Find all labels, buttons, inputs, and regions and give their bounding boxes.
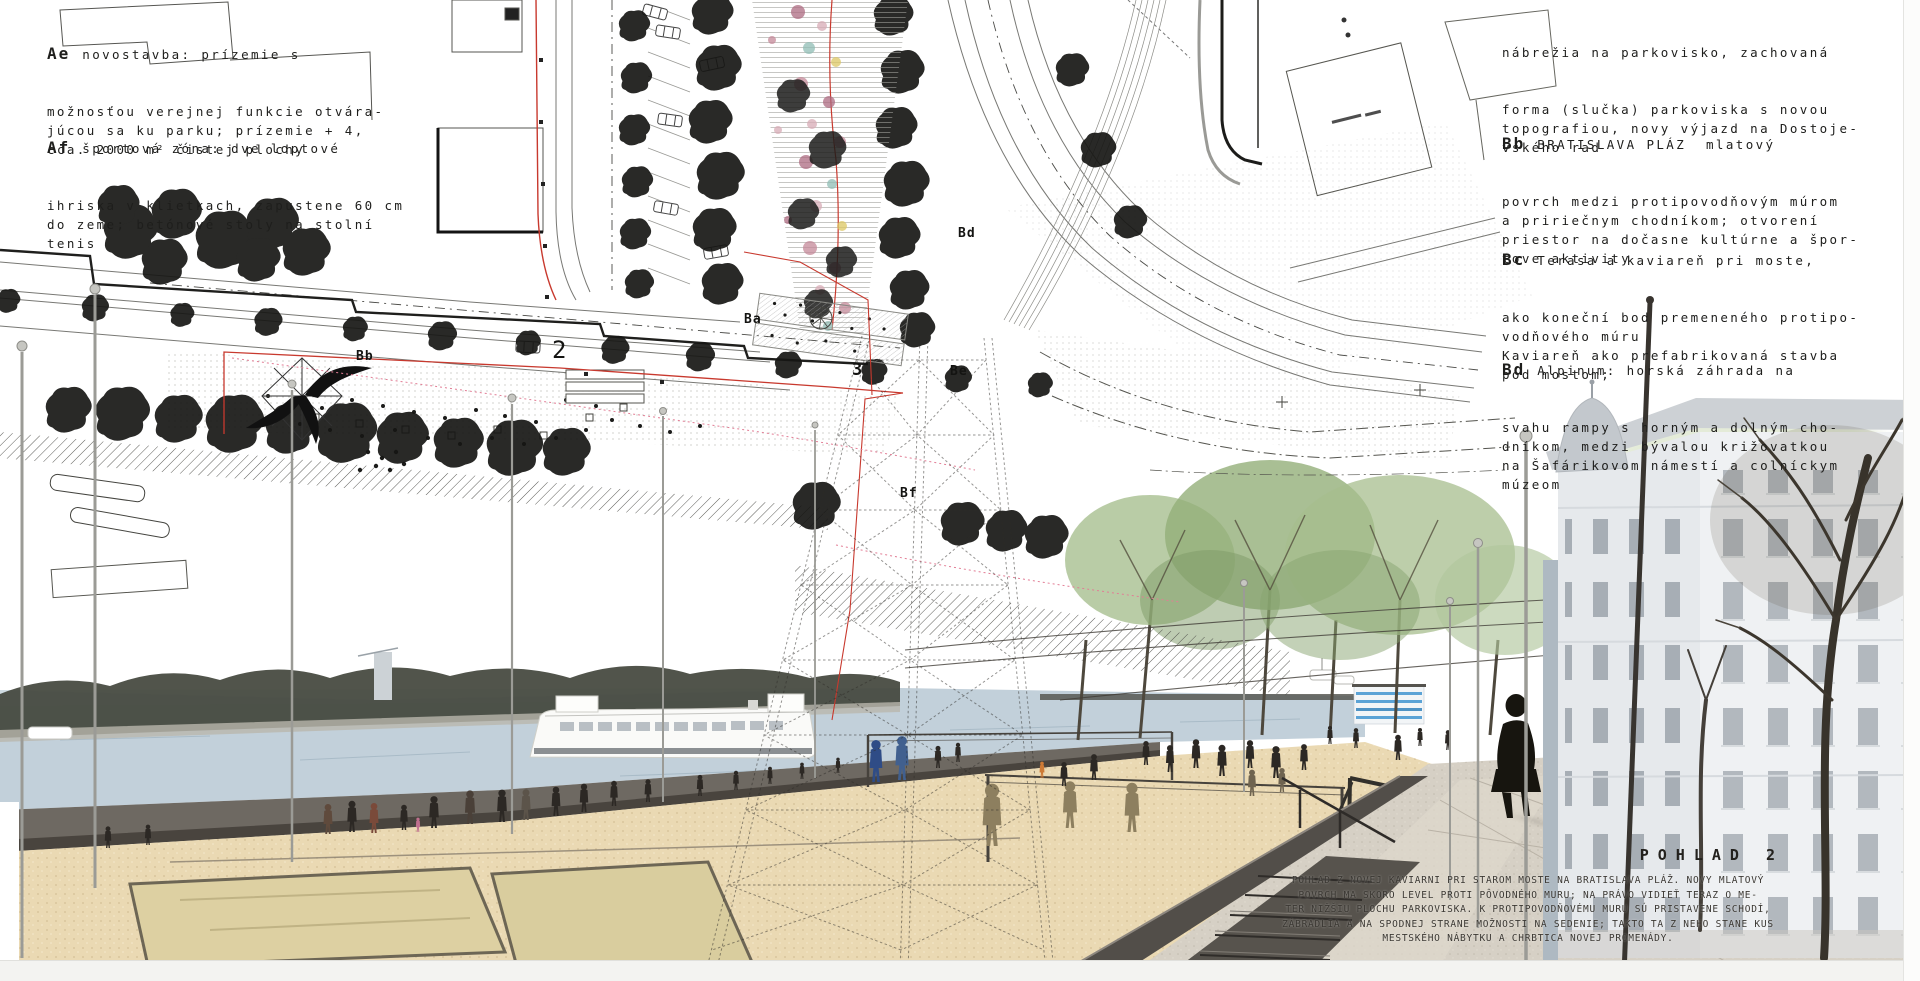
plan-label-viewpoint-2: 2 <box>552 336 566 364</box>
text-line: ZÁBRADLIA A NA SPODNEJ STRANE MOŽNOSTI N… <box>1272 918 1784 933</box>
text-line: dníkom, medzi bývalou križovatkou <box>1502 437 1839 456</box>
plan-label-bf: Bf <box>900 486 918 501</box>
plaza-dotted-surface <box>168 352 900 455</box>
note-bd: BdAlpinum: horská záhrada na svahu rampy… <box>1502 322 1839 513</box>
note-text: Alpinum: horská záhrada na <box>1537 363 1795 378</box>
path-sign <box>1605 750 1633 768</box>
text-line: TER NIŽŠIU PLOCHU PARKOVISKA. K PROTIPOV… <box>1272 903 1784 918</box>
note-body: ihriska v klietkach, zapustene 60 cmdo z… <box>47 196 404 253</box>
small-white-boats <box>1310 658 1354 684</box>
alpinum-garden <box>752 0 908 345</box>
top-right-buildings <box>1128 0 1432 196</box>
moored-boats-plan <box>49 474 187 598</box>
text-line: na Šafárikovom námestí a colníckym <box>1502 456 1839 475</box>
survey-crosses <box>1276 384 1426 408</box>
promenade <box>0 742 1160 852</box>
text-line: povrch medzi protipovodňovým múrom <box>1502 192 1859 211</box>
plan-label-ba: Ba <box>744 312 762 327</box>
cafe-terrace <box>753 293 909 365</box>
promenade-bench-edge <box>0 750 1160 852</box>
beach-sand <box>0 742 1432 981</box>
star-sculpture <box>246 358 372 444</box>
note-code: Bd <box>1502 360 1525 379</box>
plaza-furniture-squares <box>312 404 627 439</box>
text-line: ihriska v klietkach, zapustene 60 cm <box>47 196 404 215</box>
note-text: nábrežia na parkovisko, zachovaná <box>1502 45 1830 60</box>
stair-railing <box>1282 778 1395 848</box>
presentation-board: Aenovostavba: prízemie s možnosťou verej… <box>0 0 1920 981</box>
distant-highrise <box>374 652 392 700</box>
green-trees <box>1065 460 1575 740</box>
old-bridge-truss <box>706 336 1054 972</box>
page-right-margin <box>1903 0 1920 981</box>
plan-label-be: Be <box>950 364 968 379</box>
far-bank-treeline <box>0 648 900 742</box>
note-line: Aenovostavba: prízemie s <box>47 44 384 64</box>
caption-body: POHLAD Z NOVEJ KAVIARNI PRI STAROM MOSTE… <box>1272 874 1784 947</box>
text-line: tenis <box>47 234 404 253</box>
plan-label-bb: Bb <box>356 349 374 364</box>
plaza-furniture-dots <box>266 394 702 472</box>
text-line: do zeme; betónové stoly na stolní <box>47 215 404 234</box>
text-line: POHLAD Z NOVEJ KAVIARNI PRI STAROM MOSTE… <box>1272 874 1784 889</box>
overhead-wires <box>905 600 1552 700</box>
river-water <box>0 688 1365 810</box>
pink-dashed-lines <box>232 358 1180 602</box>
note-line: BcTerasa a kaviareň pri moste, <box>1502 250 1859 270</box>
text-line: MESTSKÉHO NÁBYTKU A CHRBTICA NOVEJ PROME… <box>1272 932 1784 947</box>
note-body: svahu rampy s horným a dolným cho-dníkom… <box>1502 418 1839 494</box>
small-boat <box>28 727 72 739</box>
embankment-hatch <box>0 432 828 530</box>
text-line: POVRCH MA SKORO LEVEL PROTI PÔVODNÉHO MU… <box>1272 889 1784 904</box>
note-code: Ae <box>47 44 70 63</box>
embankment-hatch-right <box>795 565 1290 696</box>
beach-players <box>983 768 1286 846</box>
note-text: športová zóna: dve loptové <box>82 141 340 156</box>
parked-cars <box>516 4 729 354</box>
note-code: Bb <box>1502 134 1525 153</box>
note-code: Bc <box>1502 250 1525 269</box>
walking-woman-silhouette <box>1491 694 1541 818</box>
ramp-lawn-dotted <box>1005 122 1532 402</box>
page-margin-left <box>0 802 19 981</box>
plan-label-bd: Bd <box>958 226 976 241</box>
note-line: Afšportová zóna: dve loptové <box>47 138 404 158</box>
far-bridge-deck <box>1040 694 1370 700</box>
note-text: BRATISLAVA PLÁZ mlatový <box>1537 137 1775 152</box>
parking-herringbone <box>648 4 690 284</box>
note-line: BdAlpinum: horská záhrada na <box>1502 360 1839 380</box>
lower-lawn-dotted <box>1035 330 1460 462</box>
bridge-approach-rails <box>1004 0 1166 330</box>
note-text: Terasa a kaviareň pri moste, <box>1537 253 1815 268</box>
cruise-ship <box>530 694 816 758</box>
page-bottom-margin <box>0 960 1920 981</box>
note-text: novostavba: prízemie s <box>82 47 300 62</box>
blue-striped-building <box>1352 684 1426 724</box>
promenade-people <box>105 736 1098 848</box>
path-people <box>1394 707 1694 760</box>
text-line: svahu rampy s horným a dolným cho- <box>1502 418 1839 437</box>
concrete-tables <box>566 370 644 403</box>
distant-crane <box>358 648 398 656</box>
note-code: Af <box>47 138 70 157</box>
note-line: BbBRATISLAVA PLÁZ mlatový <box>1502 134 1859 154</box>
note-line: nábrežia na parkovisko, zachovaná <box>1502 43 1859 62</box>
plan-label-viewpoint-3: 3 <box>852 360 863 380</box>
caption-title: POHLAD 2 <box>1272 846 1784 864</box>
note-af: Afšportová zóna: dve loptové ihriska v k… <box>47 100 404 272</box>
text-line: múzeom <box>1502 475 1839 494</box>
beach-crowd <box>1142 726 1451 778</box>
survey-lines <box>1040 352 1515 475</box>
view-caption: POHLAD 2 POHLAD Z NOVEJ KAVIARNI PRI STA… <box>1272 846 1784 947</box>
